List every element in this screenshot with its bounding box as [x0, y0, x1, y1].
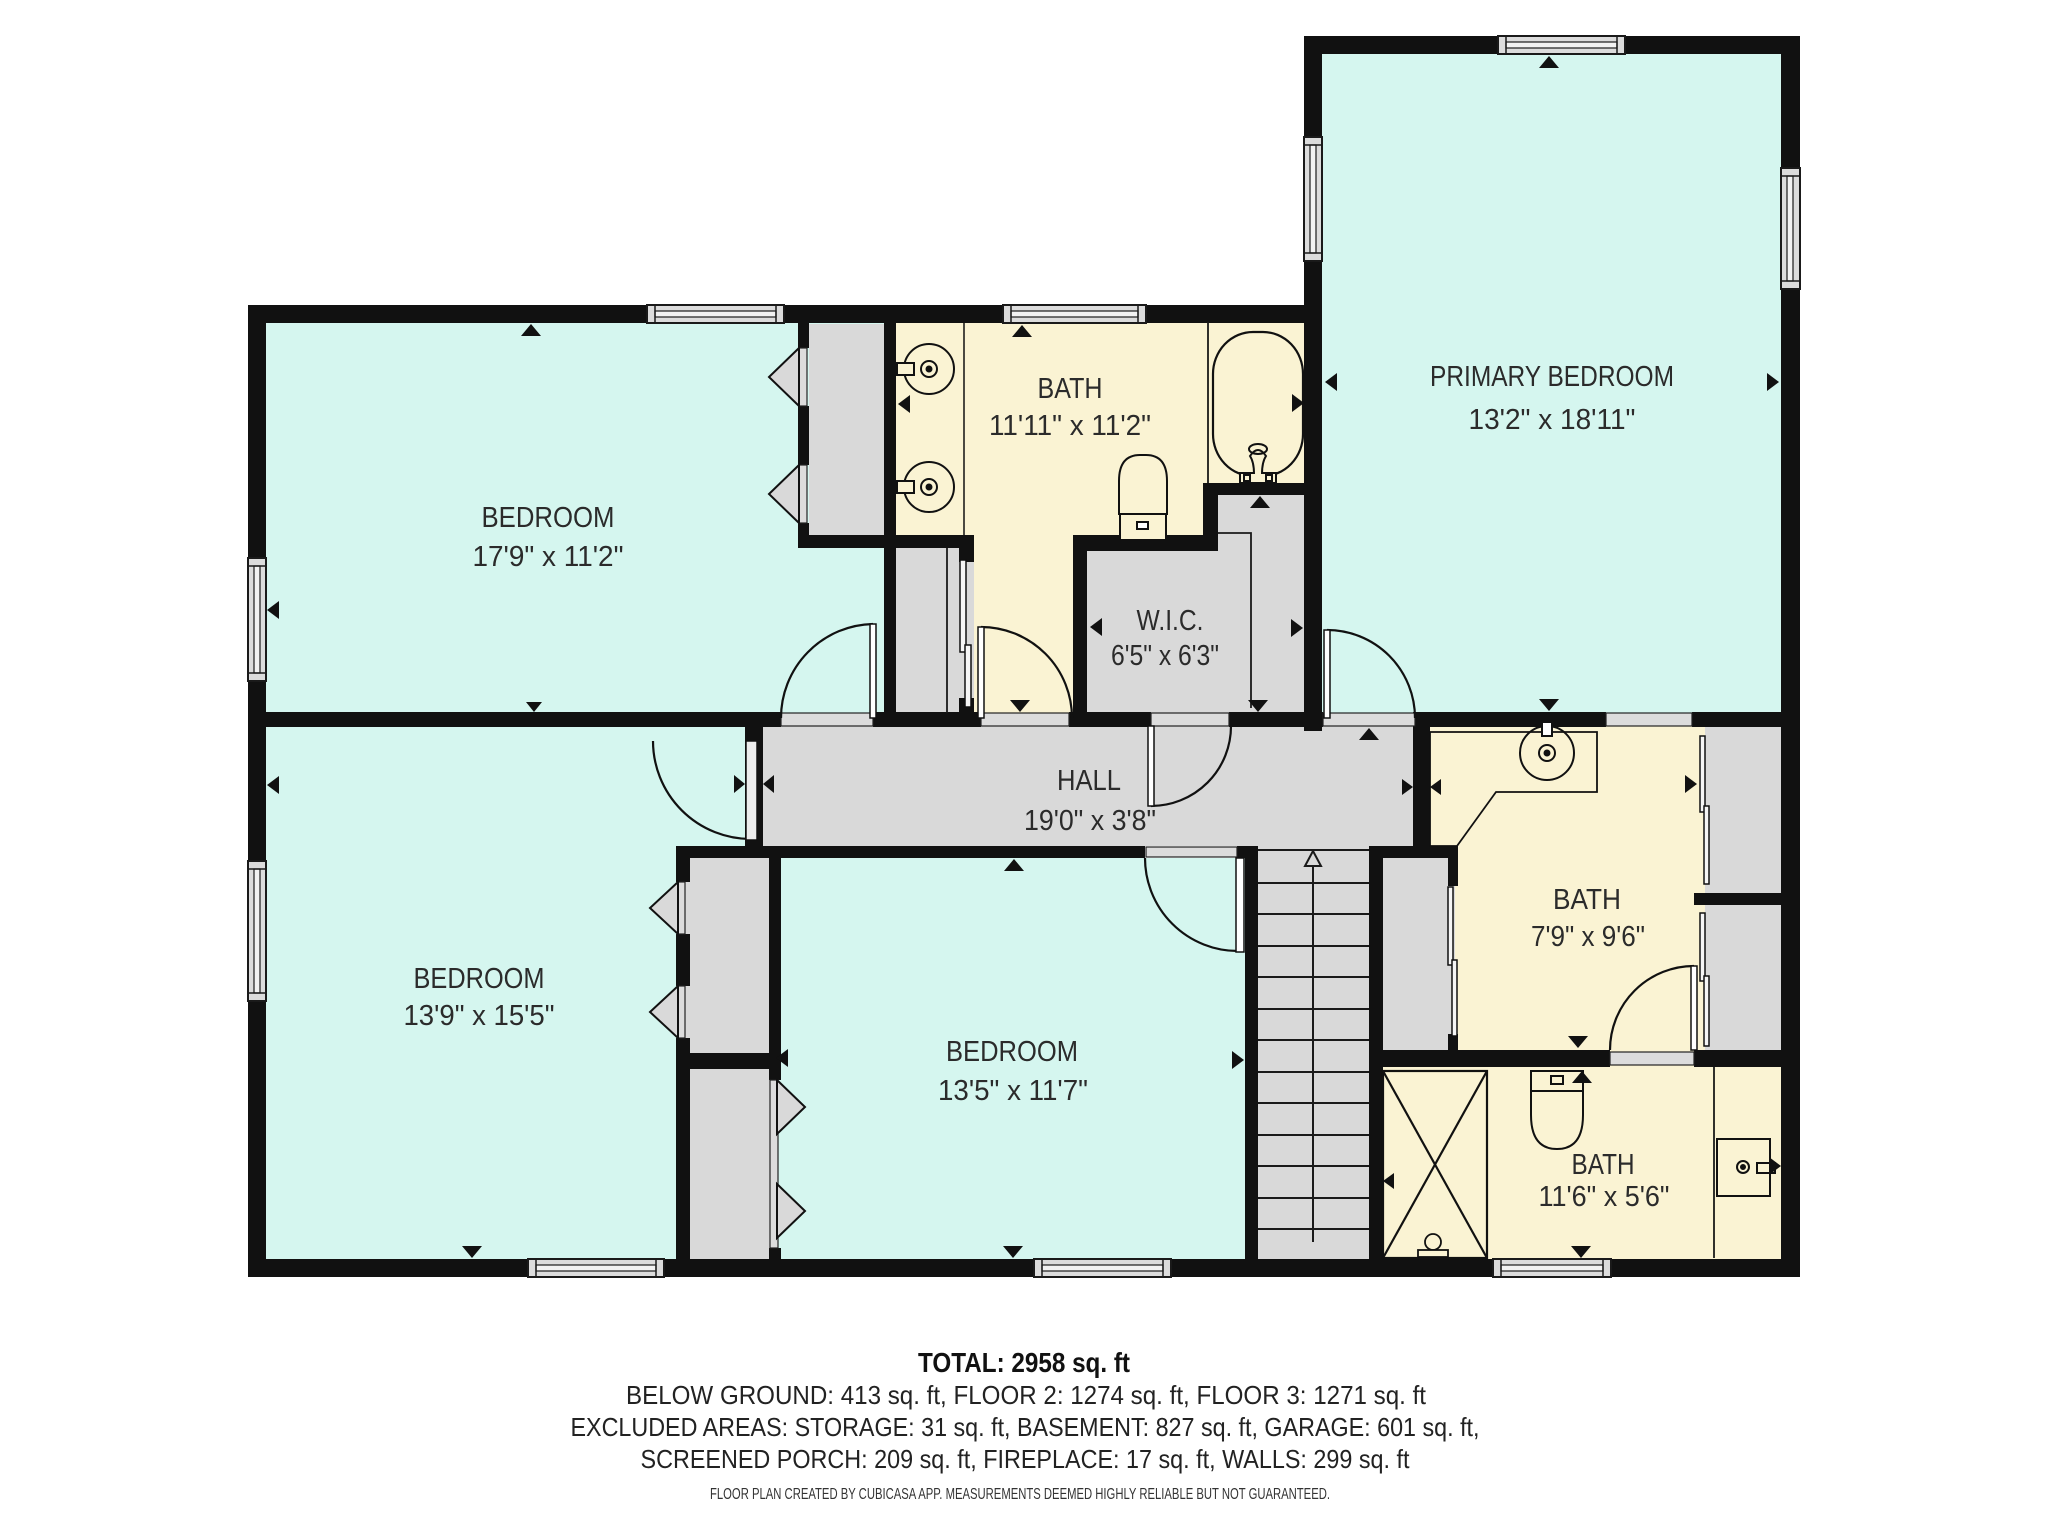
svg-text:BATH: BATH — [1572, 1149, 1635, 1181]
svg-text:BATH: BATH — [1553, 884, 1621, 916]
svg-text:13'9" x 15'5": 13'9" x 15'5" — [404, 1000, 555, 1032]
svg-text:BATH: BATH — [1038, 373, 1103, 405]
svg-text:BEDROOM: BEDROOM — [946, 1036, 1078, 1068]
svg-text:W.I.C.: W.I.C. — [1137, 605, 1204, 637]
svg-text:HALL: HALL — [1057, 765, 1121, 797]
svg-text:SCREENED PORCH: 209 sq. ft, FI: SCREENED PORCH: 209 sq. ft, FIREPLACE: 1… — [641, 1444, 1411, 1474]
svg-text:TOTAL: 2958 sq. ft: TOTAL: 2958 sq. ft — [918, 1347, 1130, 1378]
svg-text:BEDROOM: BEDROOM — [414, 963, 545, 995]
svg-text:7'9" x 9'6": 7'9" x 9'6" — [1531, 921, 1645, 953]
svg-text:6'5" x 6'3": 6'5" x 6'3" — [1111, 640, 1219, 672]
svg-text:19'0" x 3'8": 19'0" x 3'8" — [1024, 805, 1156, 837]
svg-text:BELOW GROUND: 413 sq. ft, FLOO: BELOW GROUND: 413 sq. ft, FLOOR 2: 1274 … — [626, 1380, 1427, 1410]
svg-text:PRIMARY BEDROOM: PRIMARY BEDROOM — [1430, 361, 1674, 393]
svg-text:EXCLUDED AREAS: STORAGE: 31 sq: EXCLUDED AREAS: STORAGE: 31 sq. ft, BASE… — [571, 1412, 1480, 1442]
svg-text:17'9" x 11'2": 17'9" x 11'2" — [473, 541, 624, 573]
svg-text:13'5" x 11'7": 13'5" x 11'7" — [938, 1075, 1088, 1107]
svg-text:BEDROOM: BEDROOM — [482, 502, 615, 534]
svg-text:FLOOR PLAN CREATED BY CUBICASA: FLOOR PLAN CREATED BY CUBICASA APP. MEAS… — [710, 1486, 1330, 1503]
svg-text:11'6" x 5'6": 11'6" x 5'6" — [1539, 1181, 1670, 1213]
svg-text:13'2" x 18'11": 13'2" x 18'11" — [1469, 404, 1636, 436]
svg-text:11'11" x 11'2": 11'11" x 11'2" — [989, 410, 1151, 442]
